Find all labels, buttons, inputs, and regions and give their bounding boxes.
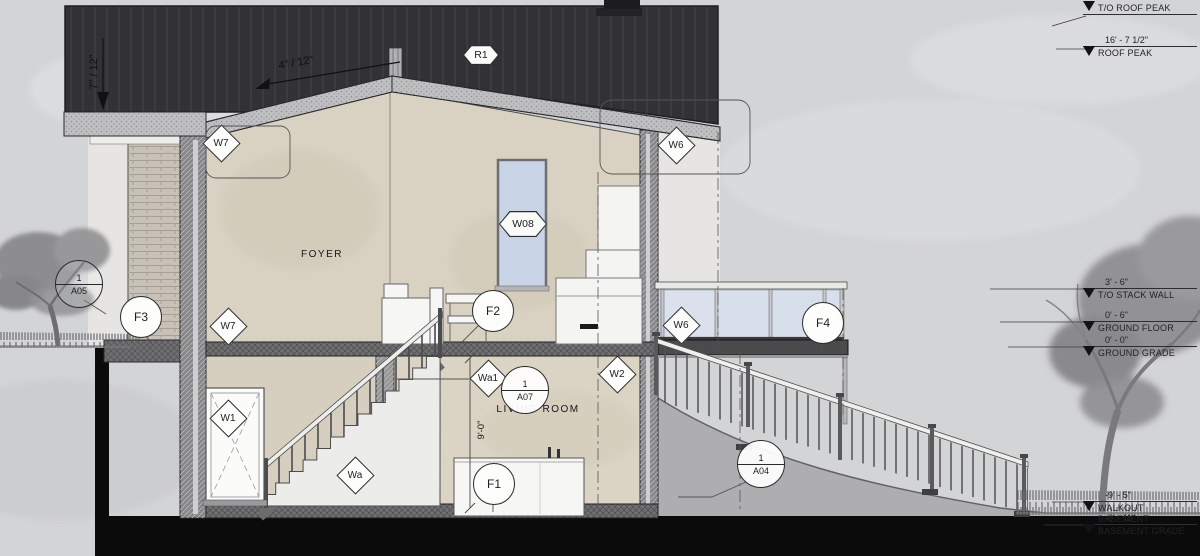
wall-tag-wa[interactable]: Wa [336,456,374,494]
elevation-arrow-icon [1083,1,1095,11]
right-tree [1046,216,1200,514]
wall-tag-label: W6 [674,320,689,331]
floor-tag-f1[interactable]: F1 [473,463,515,505]
drawing-linework [0,0,1200,556]
marker-value: 3' - 6" [1105,276,1197,288]
wall-tag-w6-lower[interactable]: W6 [662,306,700,344]
wall-tag-label: Wa [348,470,363,481]
wall-tag-label: W1 [221,413,236,424]
room-label-foyer: FOYER [282,249,362,260]
detail-sheet: A04 [753,466,769,476]
elevation-marker-ground-grade: 0' - 0" GROUND GRADE [1083,334,1197,359]
marker-name: T/O ROOF PEAK [1098,2,1171,14]
wall-tag-w1[interactable]: W1 [209,399,247,437]
section-drawing-canvas: 7" / 12" 4" / 12" FOYER LIVING ROOM 9'-0… [0,0,1200,556]
elevation-marker-basement-grade: -9' - 11" BASEMENT GRADE [1083,512,1197,537]
floor-tag-f2[interactable]: F2 [472,290,514,332]
elevation-arrow-icon [1083,346,1095,356]
floor-tag-label: F2 [486,304,500,318]
roof-tag-label: R1 [463,45,499,65]
window-tag-w08[interactable]: W08 [499,211,547,237]
wall-tag-w6-upper[interactable]: W6 [657,126,695,164]
roof-tag-r1[interactable]: R1 [463,45,499,65]
elevation-arrow-icon [1083,524,1095,534]
wall-tag-label: W7 [214,138,229,149]
ceiling-height-dimension: 9'-0" [459,407,503,453]
floor-tag-f4[interactable]: F4 [802,302,844,344]
floor-tag-label: F3 [134,310,148,324]
detail-divider [502,390,548,391]
floor-tag-f3[interactable]: F3 [120,296,162,338]
elevation-marker-to-roof-peak: T/O ROOF PEAK [1083,2,1197,15]
marker-value: 16' - 7 1/2" [1105,34,1197,46]
detail-sheet: A05 [71,286,87,296]
elevation-marker-ground-floor: 0' - 6" GROUND FLOOR [1083,309,1197,334]
wall-tag-label: W7 [221,321,236,332]
marker-name: GROUND FLOOR [1098,322,1174,334]
wall-tag-w7-upper[interactable]: W7 [202,124,240,162]
detail-callout-a04[interactable]: 1 A04 [737,440,785,488]
roof-slope-label-left: 7" / 12" [68,48,120,96]
floor-tag-label: F1 [487,477,501,491]
marker-name: ROOF PEAK [1098,47,1152,59]
marker-rule [1083,14,1197,15]
marker-value: 0' - 6" [1105,309,1197,321]
wall-tag-label: W6 [669,140,684,151]
elevation-arrow-icon [1083,46,1095,56]
detail-divider [738,464,784,465]
wall-tag-label: W2 [610,369,625,380]
marker-value: -9' - 11" [1105,512,1197,524]
detail-callout-a05[interactable]: 1 A05 [55,260,103,308]
detail-sheet: A07 [517,392,533,402]
wall-tag-w2[interactable]: W2 [598,355,636,393]
marker-name: T/O STACK WALL [1098,289,1174,301]
wall-tag-label: Wa1 [478,373,498,384]
detail-number: 1 [522,379,527,389]
marker-value: 0' - 0" [1105,334,1197,346]
marker-name: BASEMENT GRADE [1098,525,1185,537]
wall-tag-w7-lower[interactable]: W7 [209,307,247,345]
detail-number: 1 [758,453,763,463]
window-tag-label: W08 [499,211,547,237]
elevation-marker-roof-peak: 16' - 7 1/2" ROOF PEAK [1083,34,1197,59]
detail-number: 1 [76,273,81,283]
elevation-arrow-icon [1083,501,1095,511]
marker-value: -9' - 5" [1105,489,1197,501]
elevation-arrow-icon [1083,321,1095,331]
elevation-arrow-icon [1083,288,1095,298]
detail-callout-a07[interactable]: 1 A07 [501,366,549,414]
detail-divider [56,284,102,285]
marker-name: GROUND GRADE [1098,347,1175,359]
floor-tag-label: F4 [816,316,830,330]
elevation-marker-to-stack-wall: 3' - 6" T/O STACK WALL [1083,276,1197,301]
